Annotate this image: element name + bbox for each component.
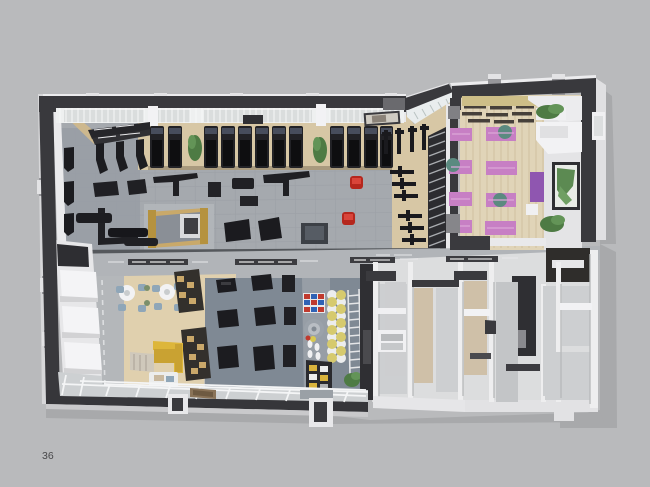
svg-text:36: 36 bbox=[42, 450, 54, 462]
